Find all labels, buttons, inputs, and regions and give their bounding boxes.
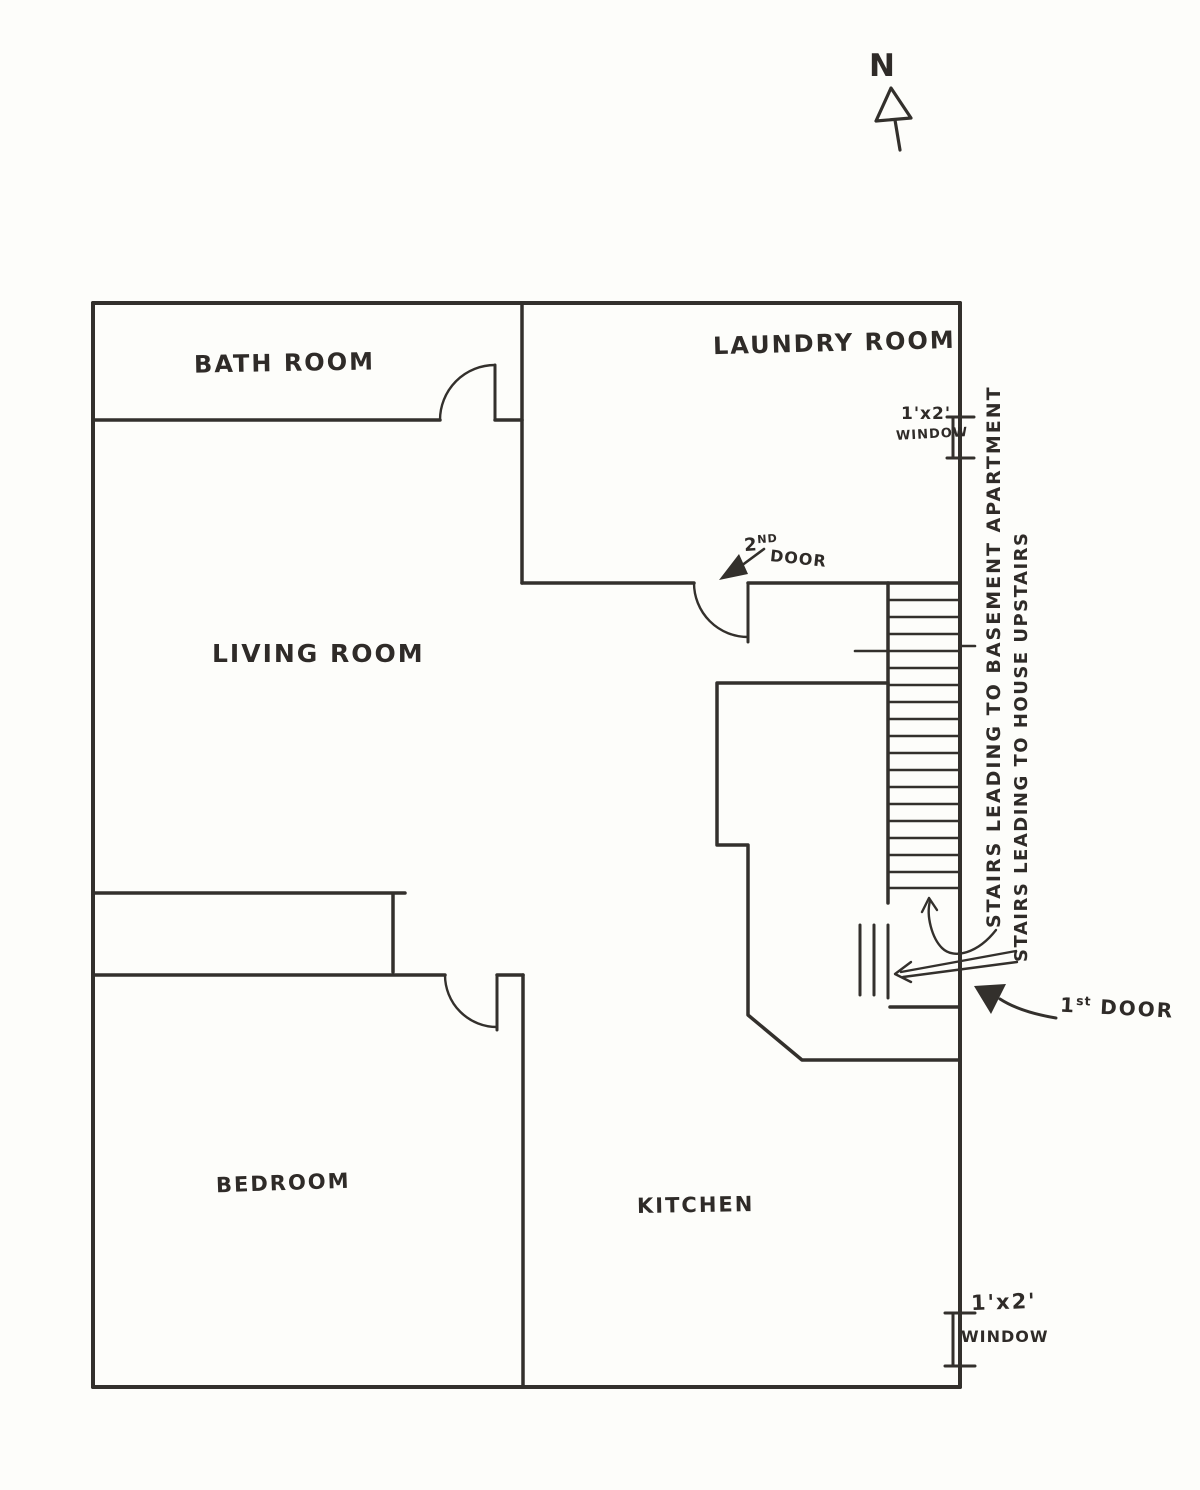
room-label-kitchen: KITCHEN (637, 1192, 755, 1218)
leader-upstairs-stairs (895, 951, 1017, 982)
entry-step-lines (860, 925, 888, 998)
interior-walls (93, 303, 960, 1387)
second-door (694, 583, 748, 642)
second-door-number: 2 (743, 534, 758, 556)
window-bottom-word-label: WINDOW (961, 1327, 1049, 1346)
first-door-number: 1 (1059, 993, 1076, 1018)
bedroom-door (445, 975, 497, 1030)
floor-plan-page: N BATH ROOM LAUNDRY ROOM LIVING ROOM BED… (0, 0, 1200, 1490)
north-arrow-triangle (876, 88, 911, 121)
stairs-upstairs-label: STAIRS LEADING TO HOUSE UPSTAIRS (1011, 530, 1032, 962)
bathroom-door-swing-arc (440, 365, 495, 420)
room-label-living: LIVING ROOM (212, 639, 425, 668)
window-top-size-label: 1'x2' (901, 404, 951, 424)
north-label: N (869, 48, 895, 84)
stair-treads (855, 600, 960, 888)
second-door-swing-arc (694, 583, 748, 637)
bathroom-door (440, 365, 495, 420)
wall-closet (95, 893, 405, 972)
first-door-arrow-line (1000, 999, 1056, 1018)
north-arrow (876, 88, 911, 150)
room-label-bathroom: BATH ROOM (194, 347, 375, 378)
north-arrow-tail (895, 120, 900, 150)
first-door-suffix: st (1076, 993, 1092, 1009)
stairs-basement-label: STAIRS LEADING TO BASEMENT APARTMENT (983, 388, 1005, 928)
entry-steps (860, 925, 888, 998)
second-door-suffix: ND (757, 532, 778, 546)
outer-walls (93, 303, 960, 1387)
window-bottom-size-label: 1'x2' (971, 1289, 1037, 1315)
first-door-word: DOOR (1100, 995, 1175, 1023)
room-label-bedroom: BEDROOM (216, 1169, 351, 1198)
bedroom-door-swing-arc (445, 975, 497, 1027)
first-door-arrow (974, 984, 1056, 1018)
second-door-arrowhead (719, 554, 748, 580)
staircase (855, 583, 975, 903)
